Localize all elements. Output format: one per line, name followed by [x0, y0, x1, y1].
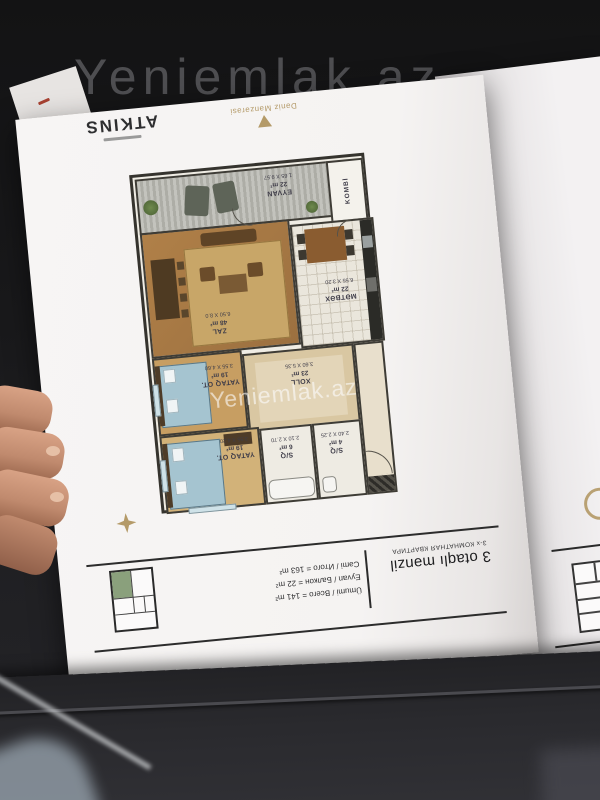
dining-chair: [178, 277, 186, 286]
pillow: [175, 480, 188, 495]
room-kombi-label: KOMBİ: [342, 177, 352, 204]
gold-ring-icon: [582, 486, 600, 522]
room-kombi: KOMBİ: [326, 158, 369, 223]
brand-logo: ATKINS: [65, 109, 177, 145]
view-direction-arrow-icon: [257, 114, 272, 127]
brand-tagline: [103, 135, 141, 142]
dining-chair: [177, 261, 185, 270]
area-summary: Ümumi / Всего = 141 m² Eyvan / Балкон = …: [207, 557, 362, 610]
pillow: [163, 369, 176, 384]
brochure-page: ATKINS Dəniz Mənzərəsi KOMBİ: [15, 75, 538, 697]
pillow: [166, 399, 179, 414]
label-sq-2: S/Q 4 m² 2.40 X 2.25: [312, 427, 360, 456]
facing-page-rule: [555, 635, 600, 648]
label-sq-1: S/Q 6 m² 2.10 X 2.70: [262, 432, 310, 461]
building-keyplan: [109, 567, 159, 633]
kitchen-chair: [297, 234, 306, 245]
armchair: [199, 266, 215, 281]
lounge-chair: [184, 185, 209, 216]
corner-highlight: [540, 746, 600, 800]
brand-name: ATKINS: [83, 110, 159, 137]
view-label: Dəniz Mənzərəsi: [230, 101, 298, 116]
facing-page-rule: [551, 540, 600, 552]
dining-chair: [180, 293, 188, 302]
unit-highlight: [111, 571, 132, 599]
facing-page-keyplan: [571, 558, 600, 634]
sea-view-note: Dəniz Mənzərəsi: [221, 100, 307, 131]
compass-icon: [116, 512, 138, 534]
armchair: [247, 262, 263, 277]
apartment-title: 3 otaqlı mənzil 3-х КОМНАТНАЯ КВАРТИРА: [372, 537, 508, 576]
photo-scene: Yeniemlak.az ATKINS Dəniz Mənzərəsi: [0, 0, 600, 800]
stair-hatch: [368, 474, 395, 492]
kitchen-chair: [298, 250, 307, 261]
fingernail: [50, 492, 64, 502]
floor-plan: KOMBİ: [129, 153, 397, 514]
leather-seam: [0, 684, 600, 716]
pillow: [171, 447, 184, 462]
label-yataq-2: YATAQ OT. 19 m² 3.55 X 4.20: [210, 433, 260, 462]
toilet: [322, 476, 337, 493]
kitchen-chair: [346, 245, 355, 256]
kitchen-sink: [362, 235, 373, 248]
legend-divider: [364, 550, 372, 608]
coffee-table: [218, 273, 248, 294]
fingernail: [46, 446, 60, 456]
